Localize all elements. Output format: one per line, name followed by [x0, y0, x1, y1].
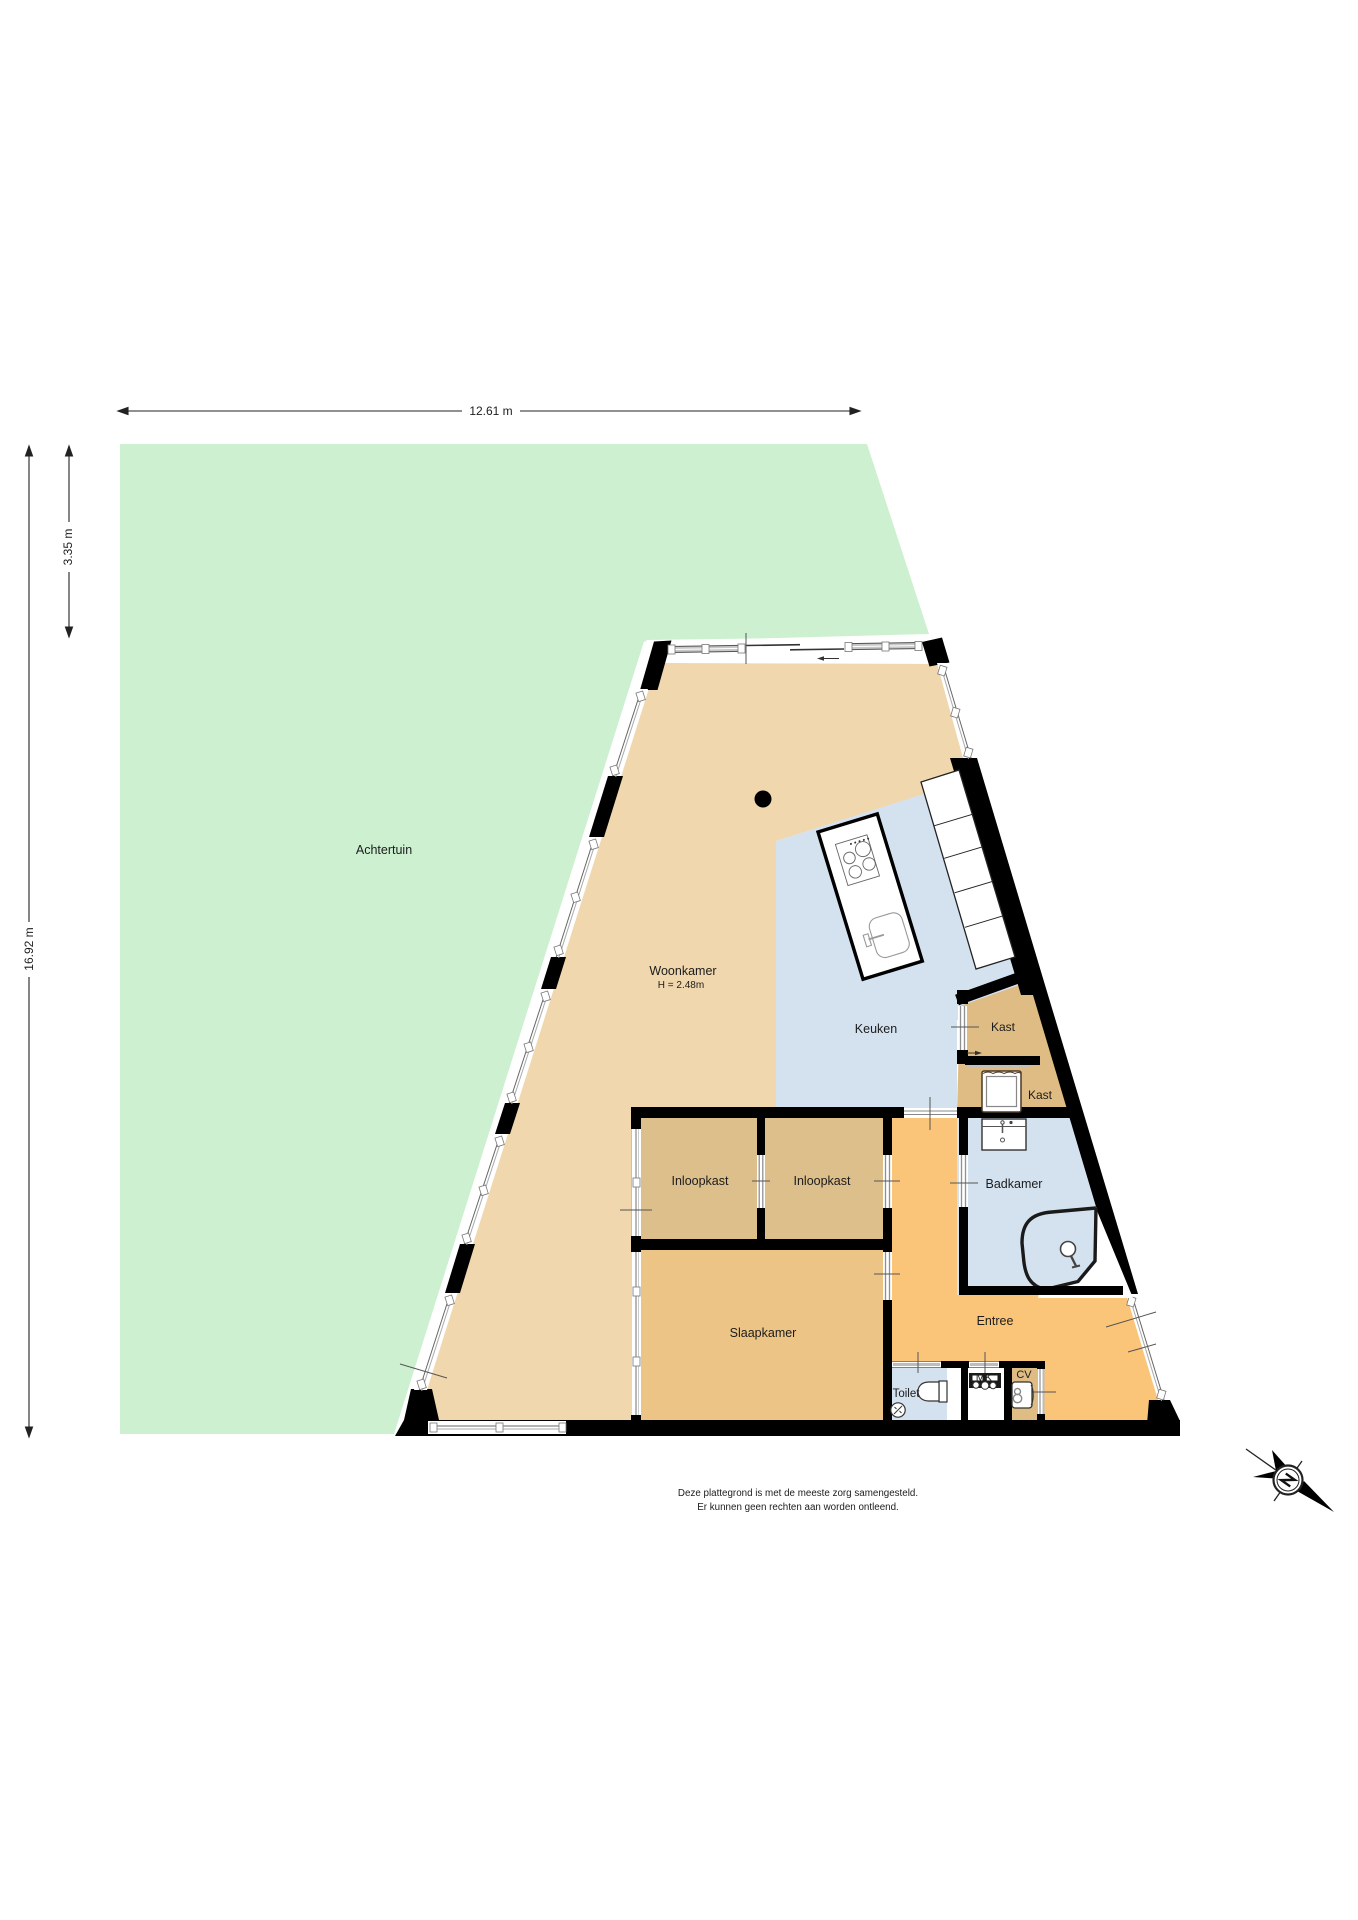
svg-text:Badkamer: Badkamer: [986, 1177, 1043, 1191]
svg-text:CV: CV: [1016, 1369, 1032, 1381]
svg-text:Kast: Kast: [991, 1020, 1016, 1034]
svg-text:Kast: Kast: [1028, 1088, 1053, 1102]
svg-text:H = 2.48m: H = 2.48m: [658, 980, 704, 991]
svg-text:Woonkamer: Woonkamer: [649, 964, 716, 978]
svg-text:Er kunnen geen rechten aan wor: Er kunnen geen rechten aan worden ontlee…: [697, 1502, 899, 1513]
svg-text:Achtertuin: Achtertuin: [356, 843, 412, 857]
svg-text:3.35 m: 3.35 m: [61, 529, 75, 566]
svg-text:Inloopkast: Inloopkast: [794, 1174, 852, 1188]
svg-text:16.92 m: 16.92 m: [22, 927, 36, 970]
svg-text:12.61 m: 12.61 m: [469, 404, 512, 418]
svg-text:Deze plattegrond is met de mee: Deze plattegrond is met de meeste zorg s…: [678, 1488, 918, 1499]
svg-text:Keuken: Keuken: [855, 1022, 897, 1036]
svg-text:MK: MK: [976, 1372, 993, 1384]
svg-text:Slaapkamer: Slaapkamer: [730, 1326, 797, 1340]
svg-text:Toilet: Toilet: [893, 1388, 921, 1400]
svg-text:Entree: Entree: [977, 1314, 1014, 1328]
svg-text:Inloopkast: Inloopkast: [672, 1174, 730, 1188]
